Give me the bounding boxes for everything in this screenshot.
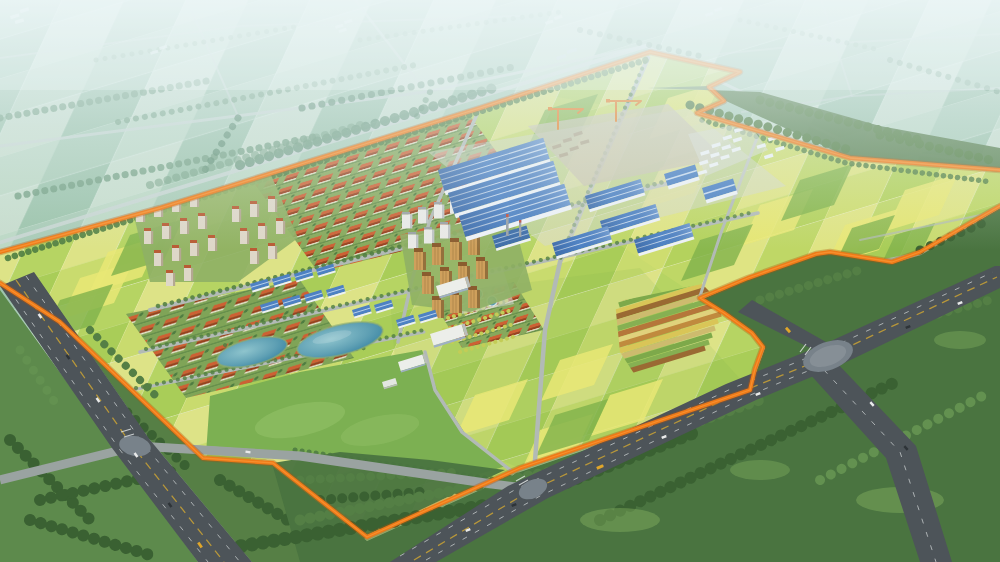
masterplan-canvas: aerial-masterplan-rendering xyxy=(0,0,1000,562)
horizon-haze xyxy=(0,0,1000,90)
aerial-rendering: aerial-masterplan-rendering xyxy=(0,0,1000,562)
